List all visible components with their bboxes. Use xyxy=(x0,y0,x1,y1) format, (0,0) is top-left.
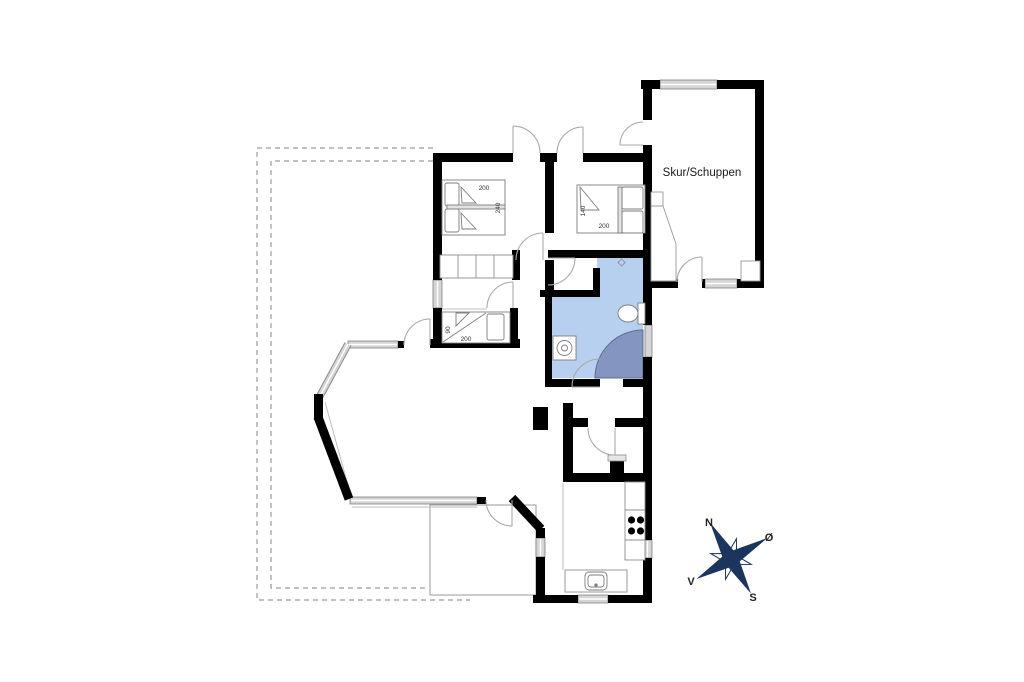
bay-window-diagonal-edge xyxy=(317,343,345,395)
bed3-dim-bottom: 200 xyxy=(461,336,472,343)
toilet xyxy=(618,303,645,324)
compass-rose: N Ø S V xyxy=(675,502,787,614)
terrace-annex-outline xyxy=(430,505,536,595)
bed2-dim-bottom: 200 xyxy=(599,223,610,230)
chimney-cap xyxy=(608,455,626,461)
kitchen-sink xyxy=(585,572,607,590)
wardrobe xyxy=(440,255,513,278)
compass-south-label: S xyxy=(749,592,756,604)
bay-window-diagonal-edge2 xyxy=(323,346,351,398)
bed1-dim-top: 200 xyxy=(479,185,490,192)
compass-north-label: N xyxy=(705,517,713,529)
shed-label: Skur/Schuppen xyxy=(663,167,742,179)
compass-east-label: Ø xyxy=(765,532,774,544)
shed-shelf xyxy=(741,261,760,281)
floor-plan-drawing: Skur/Schuppen 200 240 140 200 90 200 N Ø… xyxy=(0,0,1024,682)
bed3-dim-side: 90 xyxy=(445,326,452,334)
compass-west-label: V xyxy=(687,576,695,588)
bed2-dim-side: 140 xyxy=(580,205,587,216)
bed-single xyxy=(442,312,510,343)
floor-plan-page: Skur/Schuppen 200 240 140 200 90 200 N Ø… xyxy=(0,0,1024,682)
shed-boiler xyxy=(651,192,676,281)
washing-machine xyxy=(553,336,576,360)
bed1-dim-side: 240 xyxy=(495,202,502,213)
bed-140 xyxy=(577,185,645,233)
